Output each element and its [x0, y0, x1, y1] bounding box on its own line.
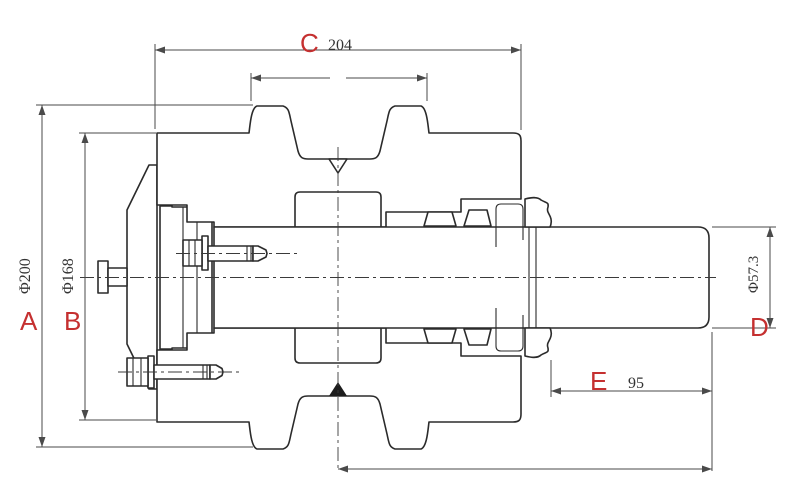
grease-plug: [98, 261, 127, 293]
dimension-c: C 204: [155, 28, 521, 130]
dimension-shaft-offset: [338, 466, 712, 473]
dim-value-c: 204: [328, 37, 352, 54]
dim-label-d: D: [750, 312, 769, 342]
dim-label-c: C: [300, 28, 319, 58]
dim-value-d: Φ57.3: [746, 256, 762, 293]
dim-label-b: B: [64, 306, 81, 336]
dimension-d: Φ57.3 D: [712, 227, 776, 342]
dim-label-e: E: [590, 366, 607, 396]
dimension-e: E 95: [551, 332, 712, 471]
dim-value-b: Φ168: [60, 258, 77, 294]
engineering-drawing: Φ200 A Φ168 B C 204 Φ57.3 D: [0, 0, 800, 500]
drawing-canvas: Φ200 A Φ168 B C 204 Φ57.3 D: [0, 0, 800, 500]
dimension-flange-span: [251, 73, 427, 101]
dim-value-e: 95: [628, 375, 644, 392]
dim-label-a: A: [20, 306, 38, 336]
dim-value-a: Φ200: [17, 258, 34, 294]
